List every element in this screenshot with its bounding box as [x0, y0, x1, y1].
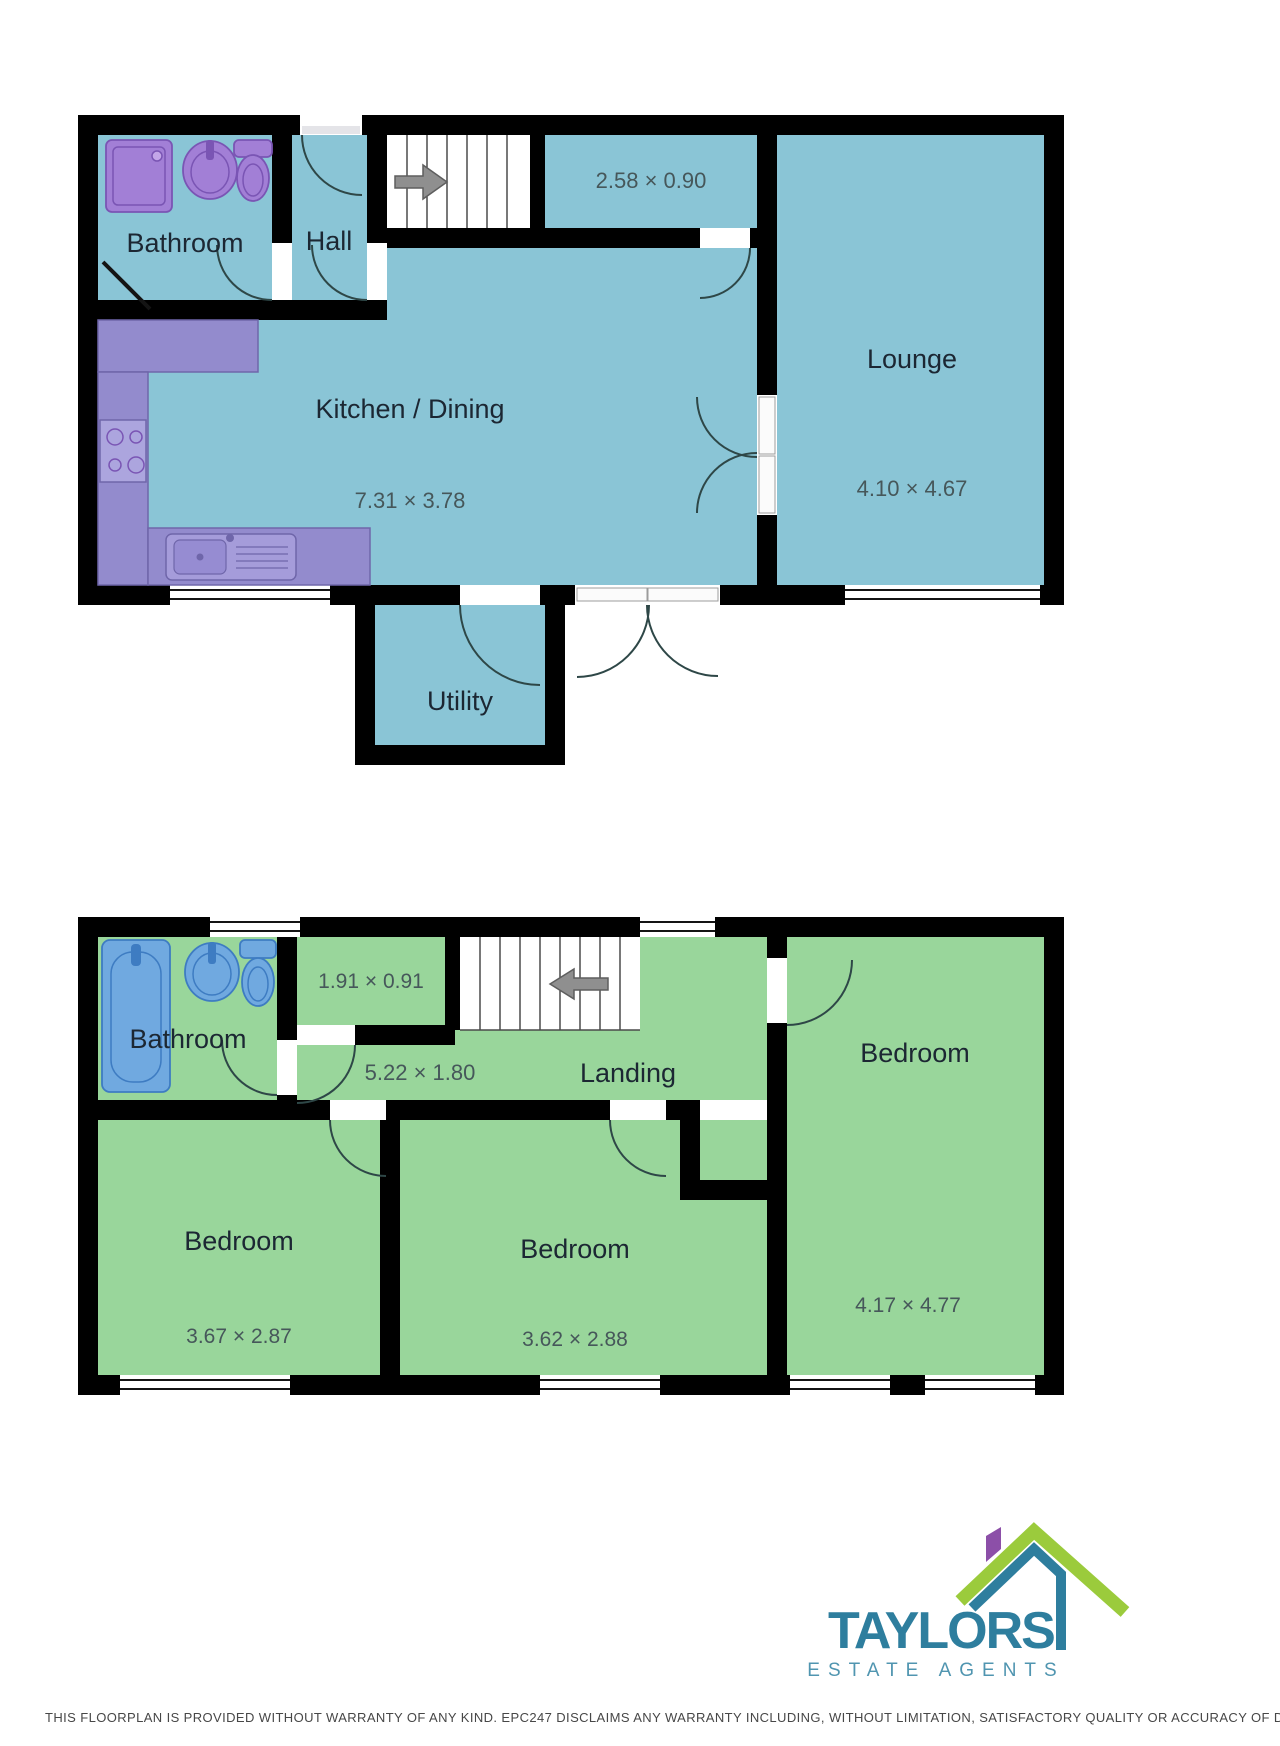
window	[845, 585, 1040, 605]
room-label-bedroom-1: Bedroom	[184, 1226, 294, 1256]
first-floor-plan: Bathroom 1.91 × 0.91 5.22 × 1.80 Landing…	[78, 917, 1064, 1395]
shower-icon	[106, 140, 172, 212]
window	[120, 1375, 290, 1395]
room-hall	[292, 135, 367, 300]
door-arc	[647, 605, 718, 676]
room-dims-cupboard: 1.91 × 0.91	[318, 970, 424, 993]
room-dims-landing: 5.22 × 1.80	[365, 1060, 476, 1085]
bath-icon	[102, 940, 170, 1092]
room-label-bathroom-ground: Bathroom	[126, 228, 243, 258]
room-label-bedroom-3: Bedroom	[860, 1038, 970, 1068]
kitchen-sink-icon	[166, 534, 296, 580]
window	[925, 1375, 1035, 1395]
hob-icon	[100, 420, 146, 482]
room-dims-bedroom-3: 4.17 × 4.77	[855, 1294, 961, 1317]
sink-icon	[185, 942, 239, 1001]
stairs-first	[460, 937, 640, 1030]
room-label-kitchen: Kitchen / Dining	[315, 394, 504, 424]
entrance-door-leaf	[302, 126, 360, 134]
floorplan-page: Bathroom Hall 2.58 × 0.90 Kitchen / Dini…	[0, 0, 1280, 1746]
window	[790, 1375, 890, 1395]
room-dims-passage: 2.58 × 0.90	[596, 168, 707, 193]
room-dims-kitchen: 7.31 × 3.78	[355, 488, 466, 513]
window	[170, 585, 330, 605]
room-dims-bedroom-2: 3.62 × 2.88	[522, 1328, 628, 1351]
brand-logo: TAYLORS ESTATE AGENTS	[807, 1527, 1125, 1681]
window	[540, 1375, 660, 1395]
disclaimer-text: THIS FLOORPLAN IS PROVIDED WITHOUT WARRA…	[45, 1710, 1280, 1725]
door-arc	[577, 605, 649, 677]
floorplan-image: Bathroom Hall 2.58 × 0.90 Kitchen / Dini…	[0, 0, 1280, 1746]
room-label-bathroom-first: Bathroom	[129, 1024, 246, 1054]
room-kitchen-dining-upper	[387, 248, 757, 320]
kitchen-counter	[98, 320, 258, 372]
room-label-bedroom-2: Bedroom	[520, 1234, 630, 1264]
window	[210, 917, 300, 937]
stairs-ground	[387, 135, 530, 228]
sink-icon	[183, 140, 237, 199]
room-dims-lounge: 4.10 × 4.67	[857, 476, 968, 501]
room-label-lounge: Lounge	[867, 344, 957, 374]
window	[640, 917, 715, 937]
brand-tagline: ESTATE AGENTS	[807, 1660, 1064, 1681]
brand-name: TAYLORS	[828, 1602, 1054, 1660]
room-label-landing: Landing	[580, 1058, 676, 1088]
room-label-utility: Utility	[427, 686, 493, 716]
room-label-hall: Hall	[306, 226, 353, 256]
toilet-icon	[240, 940, 276, 1006]
toilet-icon	[234, 140, 272, 201]
ground-floor-plan: Bathroom Hall 2.58 × 0.90 Kitchen / Dini…	[78, 115, 1064, 765]
room-dims-bedroom-1: 3.67 × 2.87	[186, 1325, 292, 1348]
room-utility	[375, 605, 545, 745]
